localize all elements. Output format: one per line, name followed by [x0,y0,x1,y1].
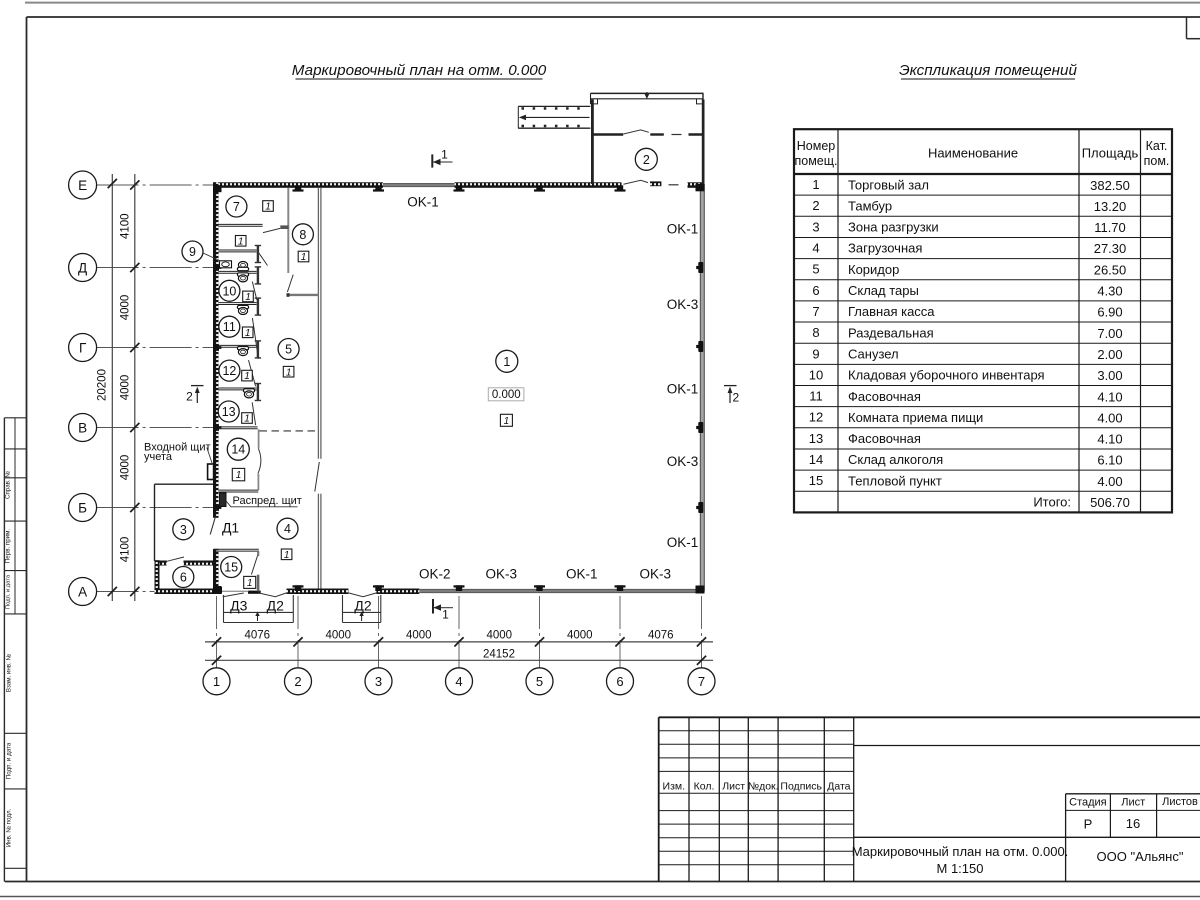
svg-text:10: 10 [809,367,823,382]
svg-text:24152: 24152 [483,648,515,660]
svg-text:4.10: 4.10 [1097,432,1122,447]
svg-text:Комната приема пищи: Комната приема пищи [848,410,983,425]
svg-text:4: 4 [284,522,291,536]
svg-text:8: 8 [299,228,306,242]
svg-text:Итого:: Итого: [1033,495,1071,510]
svg-text:6: 6 [180,571,187,585]
svg-text:4000: 4000 [119,295,131,321]
svg-text:1: 1 [236,470,242,481]
svg-text:Б: Б [78,500,87,515]
svg-text:OK-1: OK-1 [667,222,699,237]
svg-text:4000: 4000 [567,629,593,641]
svg-text:Площадь: Площадь [1082,146,1139,161]
svg-text:4100: 4100 [119,537,131,563]
svg-text:4100: 4100 [119,213,131,239]
svg-text:4: 4 [812,241,819,256]
svg-text:2: 2 [186,390,193,404]
svg-text:20200: 20200 [97,369,109,401]
svg-text:11: 11 [809,389,823,404]
svg-text:А: А [78,584,87,599]
svg-text:OK-3: OK-3 [667,454,699,469]
svg-text:12: 12 [222,364,236,378]
svg-text:Главная касса: Главная касса [848,304,935,319]
svg-text:7: 7 [812,304,819,319]
svg-text:7.00: 7.00 [1097,326,1122,341]
svg-text:OK-1: OK-1 [667,535,699,550]
svg-text:Тамбур: Тамбур [848,198,892,213]
svg-text:2: 2 [294,674,301,689]
svg-text:4076: 4076 [244,629,270,641]
svg-text:Перв. прим.: Перв. прим. [5,529,12,564]
svg-text:13: 13 [222,405,236,419]
svg-text:12: 12 [809,410,823,425]
svg-text:Фасовочная: Фасовочная [848,431,921,446]
svg-text:8: 8 [812,325,819,340]
svg-text:OK-1: OK-1 [566,567,598,582]
svg-text:Наименование: Наименование [928,146,1018,161]
svg-text:6.90: 6.90 [1097,305,1122,320]
svg-text:OK-1: OK-1 [407,194,439,209]
svg-text:9: 9 [189,245,196,259]
svg-text:1: 1 [247,578,253,589]
svg-text:2: 2 [732,391,739,405]
svg-text:М 1:150: М 1:150 [937,861,984,876]
svg-text:1: 1 [284,550,290,561]
svg-text:6: 6 [616,674,623,689]
svg-text:Инв. № подл.: Инв. № подл. [6,808,13,847]
svg-text:Р: Р [1084,817,1093,832]
svg-text:Фасовочная: Фасовочная [848,389,921,404]
svg-text:1: 1 [238,236,244,247]
svg-text:4.10: 4.10 [1097,389,1122,404]
svg-text:4000: 4000 [486,629,512,641]
svg-text:OK-3: OK-3 [640,567,672,582]
svg-text:14: 14 [231,443,245,457]
svg-text:Лист: Лист [722,781,745,793]
svg-text:11: 11 [223,320,236,334]
svg-text:4000: 4000 [119,375,131,401]
svg-text:OK-3: OK-3 [667,297,699,312]
svg-text:Г: Г [79,340,87,355]
svg-text:Подп. и дата: Подп. и дата [6,742,13,779]
svg-text:Дата: Дата [827,781,850,793]
svg-text:4: 4 [455,674,462,689]
svg-text:3: 3 [180,523,187,537]
svg-text:15: 15 [224,561,238,575]
svg-text:1: 1 [812,177,819,192]
svg-text:1: 1 [504,416,510,427]
svg-text:Экспликация помещений: Экспликация помещений [899,62,1077,79]
svg-text:Кол.: Кол. [694,781,715,793]
svg-text:3: 3 [812,219,819,234]
svg-text:Зона разгрузки: Зона разгрузки [848,220,939,235]
svg-text:2: 2 [643,153,650,167]
svg-text:Торговый зал: Торговый зал [848,177,929,192]
svg-text:4000: 4000 [119,455,131,481]
svg-text:6.10: 6.10 [1097,453,1122,468]
svg-text:506.70: 506.70 [1090,495,1130,510]
svg-text:2: 2 [812,198,819,213]
svg-text:1: 1 [244,371,250,382]
svg-text:Кат.: Кат. [1146,139,1168,153]
svg-text:Санузел: Санузел [848,346,899,361]
svg-text:Загрузочная: Загрузочная [848,241,922,256]
svg-text:Склад алкоголя: Склад алкоголя [848,452,943,467]
svg-text:13: 13 [809,431,823,446]
svg-text:OK-2: OK-2 [419,567,451,582]
svg-text:Взам. инв. №: Взам. инв. № [6,653,13,692]
svg-text:Коридор: Коридор [848,262,899,277]
svg-text:Д2: Д2 [267,597,284,613]
svg-text:2.00: 2.00 [1097,347,1122,362]
svg-text:1: 1 [286,367,292,378]
svg-text:Номер: Номер [797,139,836,153]
svg-text:OK-3: OK-3 [486,567,518,582]
svg-text:3.00: 3.00 [1097,368,1122,383]
svg-text:Склад тары: Склад тары [848,283,919,298]
svg-text:14: 14 [809,452,823,467]
svg-text:Кладовая уборочного инвентаря: Кладовая уборочного инвентаря [848,368,1045,383]
svg-text:Подпись: Подпись [780,781,822,793]
svg-text:1: 1 [265,202,271,213]
svg-text:1: 1 [245,292,251,303]
svg-text:5: 5 [285,343,292,357]
svg-text:учета: учета [144,451,173,463]
svg-text:13.20: 13.20 [1094,199,1127,214]
svg-text:Маркировочный план на отм. 0.0: Маркировочный план на отм. 0.000 [292,62,547,79]
svg-text:OK-1: OK-1 [667,382,699,397]
svg-text:помещ.: помещ. [794,154,837,168]
svg-text:3: 3 [375,674,382,689]
svg-text:4.00: 4.00 [1097,410,1122,425]
svg-text:Стадия: Стадия [1069,797,1107,809]
svg-text:Раздевальная: Раздевальная [848,325,934,340]
svg-text:Распред. щит: Распред. щит [233,495,302,507]
svg-text:ООО "Альянс": ООО "Альянс" [1097,849,1184,864]
svg-text:Листов: Листов [1162,796,1198,808]
svg-text:1: 1 [301,252,307,263]
svg-text:Подп. и дата: Подп. и дата [6,574,12,609]
svg-text:6: 6 [812,283,819,298]
svg-text:1: 1 [213,674,220,689]
svg-text:10: 10 [222,284,236,298]
svg-text:Справ. №: Справ. № [5,471,12,499]
svg-text:1: 1 [244,414,250,425]
svg-text:4000: 4000 [325,629,351,641]
svg-text:Д2: Д2 [354,597,371,613]
svg-text:Тепловой пункт: Тепловой пункт [848,473,942,488]
svg-text:27.30: 27.30 [1094,241,1127,256]
svg-text:1: 1 [503,355,510,369]
svg-text:4.00: 4.00 [1097,474,1122,489]
svg-text:26.50: 26.50 [1094,262,1127,277]
svg-text:пом.: пом. [1144,154,1170,168]
svg-text:11.70: 11.70 [1094,220,1126,235]
svg-text:Д1: Д1 [222,519,239,535]
svg-text:5: 5 [812,262,819,277]
svg-text:1: 1 [441,148,448,162]
svg-text:№док.: №док. [748,781,779,793]
svg-text:Изм.: Изм. [663,781,686,793]
svg-text:Маркировочный план на отм. 0.0: Маркировочный план на отм. 0.000. [852,844,1069,859]
svg-text:16: 16 [1126,816,1140,831]
svg-text:4076: 4076 [648,629,674,641]
svg-text:5: 5 [536,674,543,689]
svg-text:Д: Д [78,260,87,275]
svg-text:4.30: 4.30 [1097,284,1122,299]
svg-text:9: 9 [812,346,819,361]
svg-text:Лист: Лист [1121,797,1145,809]
svg-text:Е: Е [78,178,87,193]
svg-text:0.000: 0.000 [492,389,521,401]
svg-text:15: 15 [809,473,823,488]
svg-text:1: 1 [245,328,251,339]
svg-text:382.50: 382.50 [1090,178,1130,193]
svg-text:7: 7 [233,200,240,214]
svg-text:7: 7 [698,674,705,689]
svg-text:В: В [78,420,87,435]
svg-text:1: 1 [442,608,449,622]
svg-text:Д3: Д3 [230,597,247,613]
svg-text:4000: 4000 [406,629,432,641]
